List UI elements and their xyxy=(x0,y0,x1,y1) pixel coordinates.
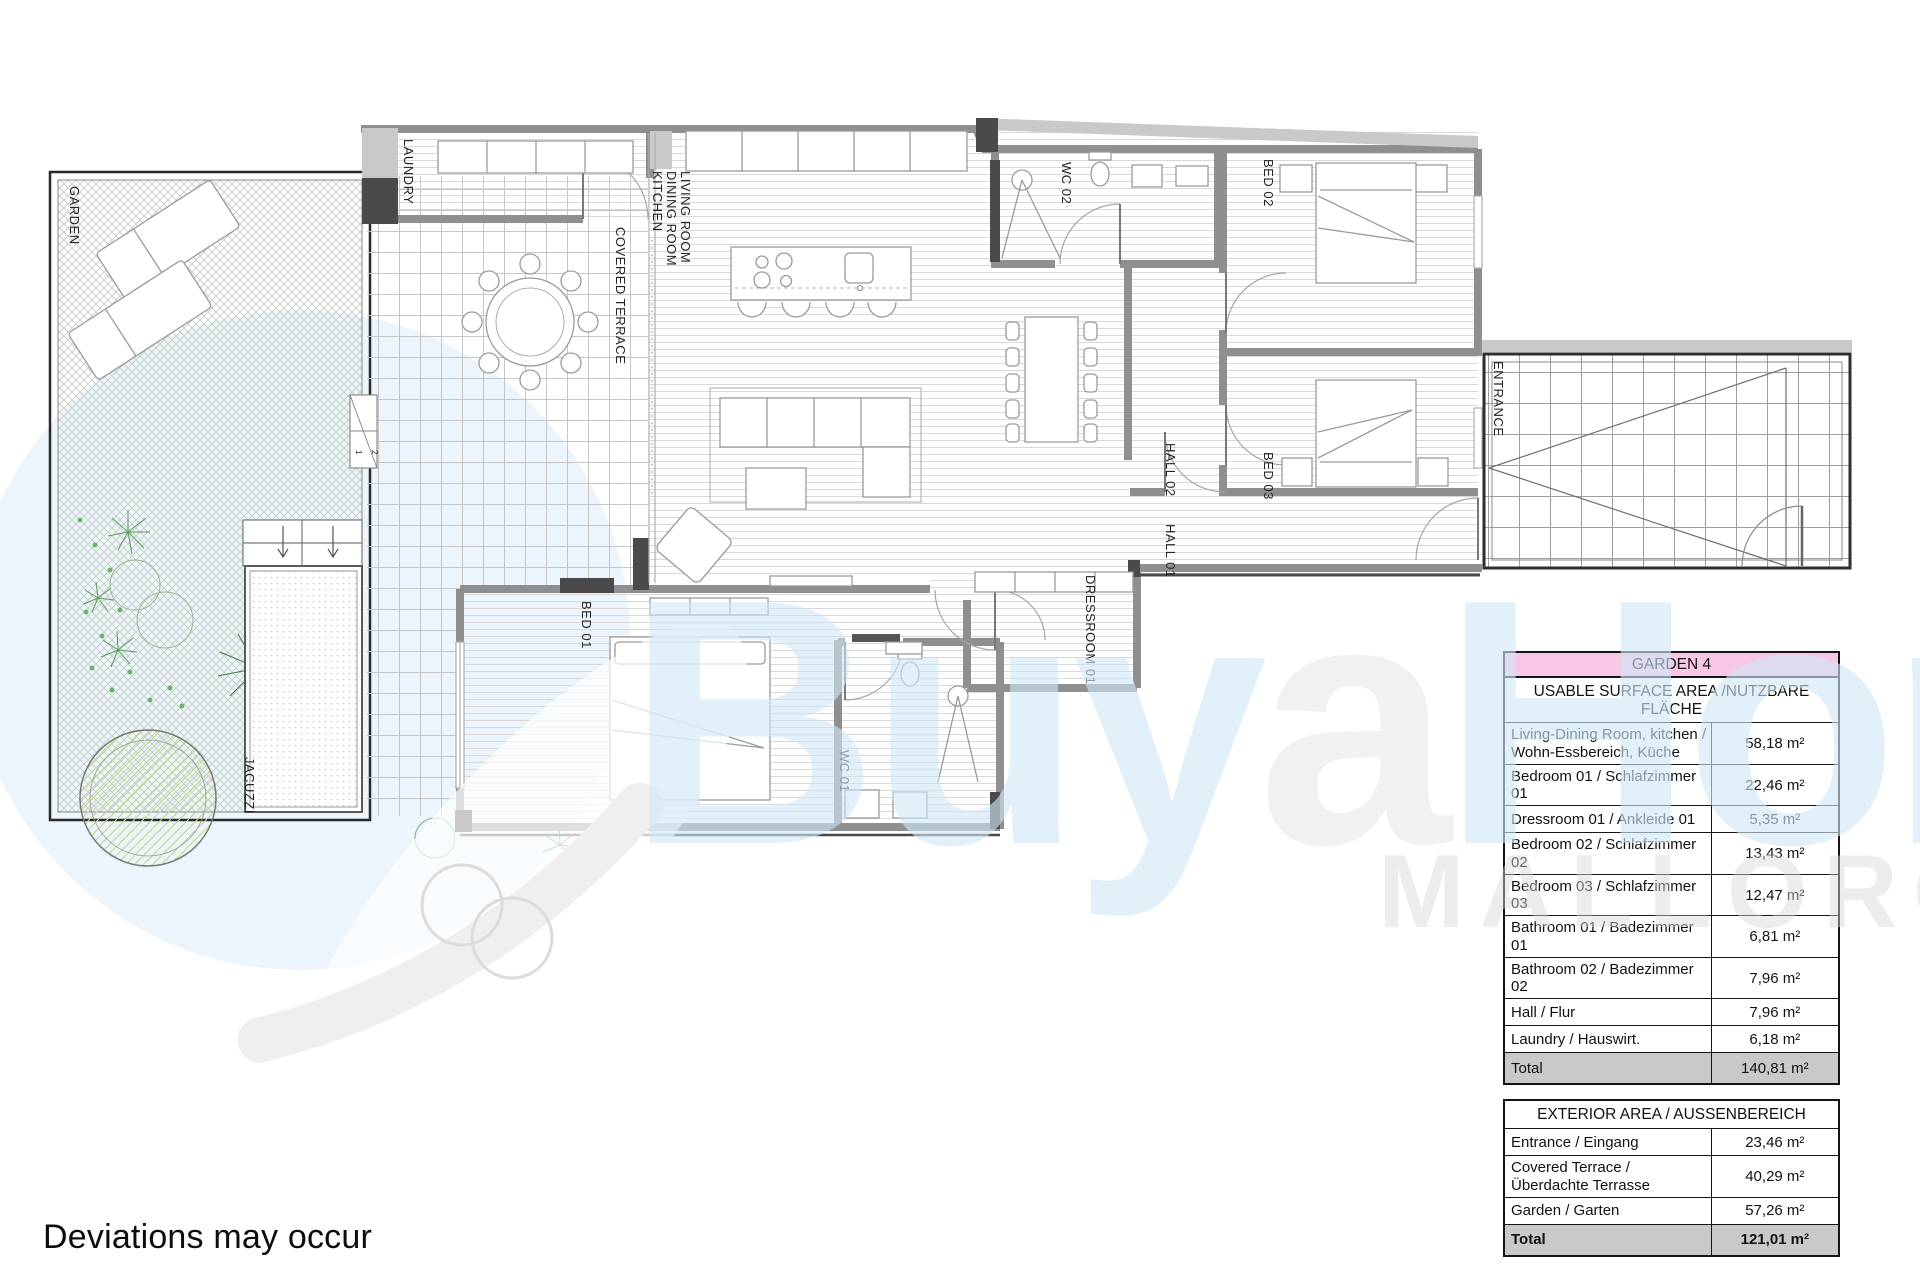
row-value: 23,46 m² xyxy=(1712,1129,1838,1155)
unit-title: GARDEN 4 xyxy=(1503,651,1840,678)
row-value: 12,47 m² xyxy=(1712,875,1838,916)
row-label: Bedroom 03 / Schlafzimmer 03 xyxy=(1505,875,1712,916)
table-row: Laundry / Hauswirt.6,18 m² xyxy=(1505,1026,1838,1053)
row-label: Dressroom 01 / Ankleide 01 xyxy=(1505,806,1712,832)
exterior-area-header: EXTERIOR AREA / AUSSENBEREICH xyxy=(1505,1101,1838,1129)
row-value: 22,46 m² xyxy=(1712,765,1838,806)
table-row: Hall / Flur7,96 m² xyxy=(1505,999,1838,1026)
usable-area-table: USABLE SURFACE AREA /NUTZBARE FLÄCHE Liv… xyxy=(1503,678,1840,1086)
table-row: Bedroom 01 / Schlafzimmer 0122,46 m² xyxy=(1505,765,1838,807)
table-row: Living-Dining Room, kitchen / Wohn-Essbe… xyxy=(1505,723,1838,765)
table-total-row: Total140,81 m² xyxy=(1505,1053,1838,1083)
total-value: 140,81 m² xyxy=(1712,1053,1838,1083)
table-total-row: Total121,01 m² xyxy=(1505,1225,1838,1255)
usable-area-header: USABLE SURFACE AREA /NUTZBARE FLÄCHE xyxy=(1505,678,1838,724)
table-row: Bedroom 02 / Schlafzimmer 0213,43 m² xyxy=(1505,833,1838,875)
row-value: 7,96 m² xyxy=(1712,999,1838,1025)
row-label: Bedroom 02 / Schlafzimmer 02 xyxy=(1505,833,1712,874)
row-value: 57,26 m² xyxy=(1712,1198,1838,1224)
row-label: Entrance / Eingang xyxy=(1505,1129,1712,1155)
row-value: 6,18 m² xyxy=(1712,1026,1838,1052)
total-value: 121,01 m² xyxy=(1712,1225,1838,1255)
disclaimer-text: Deviations may occur xyxy=(43,1218,372,1257)
floorplan-page: 1 2 xyxy=(0,0,1920,1280)
table-row: Bedroom 03 / Schlafzimmer 0312,47 m² xyxy=(1505,875,1838,917)
total-label: Total xyxy=(1505,1053,1712,1083)
area-tables: GARDEN 4 USABLE SURFACE AREA /NUTZBARE F… xyxy=(1503,651,1840,1257)
table-row: Bathroom 01 / Badezimmer 016,81 m² xyxy=(1505,916,1838,958)
table-row: Dressroom 01 / Ankleide 015,35 m² xyxy=(1505,806,1838,833)
row-value: 13,43 m² xyxy=(1712,833,1838,874)
row-label: Covered Terrace / Überdachte Terrasse xyxy=(1505,1156,1712,1197)
table-row: Bathroom 02 / Badezimmer 027,96 m² xyxy=(1505,958,1838,1000)
table-row: Entrance / Eingang23,46 m² xyxy=(1505,1129,1838,1156)
logo-swoosh-white xyxy=(232,565,809,1174)
row-value: 7,96 m² xyxy=(1712,958,1838,999)
row-value: 6,81 m² xyxy=(1712,916,1838,957)
row-label: Bathroom 02 / Badezimmer 02 xyxy=(1505,958,1712,999)
table-row: Garden / Garten57,26 m² xyxy=(1505,1198,1838,1225)
row-label: Laundry / Hauswirt. xyxy=(1505,1026,1712,1052)
exterior-area-table: EXTERIOR AREA / AUSSENBEREICH Entrance /… xyxy=(1503,1099,1840,1256)
row-value: 5,35 m² xyxy=(1712,806,1838,832)
row-label: Bathroom 01 / Badezimmer 01 xyxy=(1505,916,1712,957)
row-label: Garden / Garten xyxy=(1505,1198,1712,1224)
row-label: Bedroom 01 / Schlafzimmer 01 xyxy=(1505,765,1712,806)
row-value: 58,18 m² xyxy=(1712,723,1838,764)
row-value: 40,29 m² xyxy=(1712,1156,1838,1197)
row-label: Hall / Flur xyxy=(1505,999,1712,1025)
row-label: Living-Dining Room, kitchen / Wohn-Essbe… xyxy=(1505,723,1712,764)
total-label: Total xyxy=(1505,1225,1712,1255)
table-row: Covered Terrace / Überdachte Terrasse40,… xyxy=(1505,1156,1838,1198)
